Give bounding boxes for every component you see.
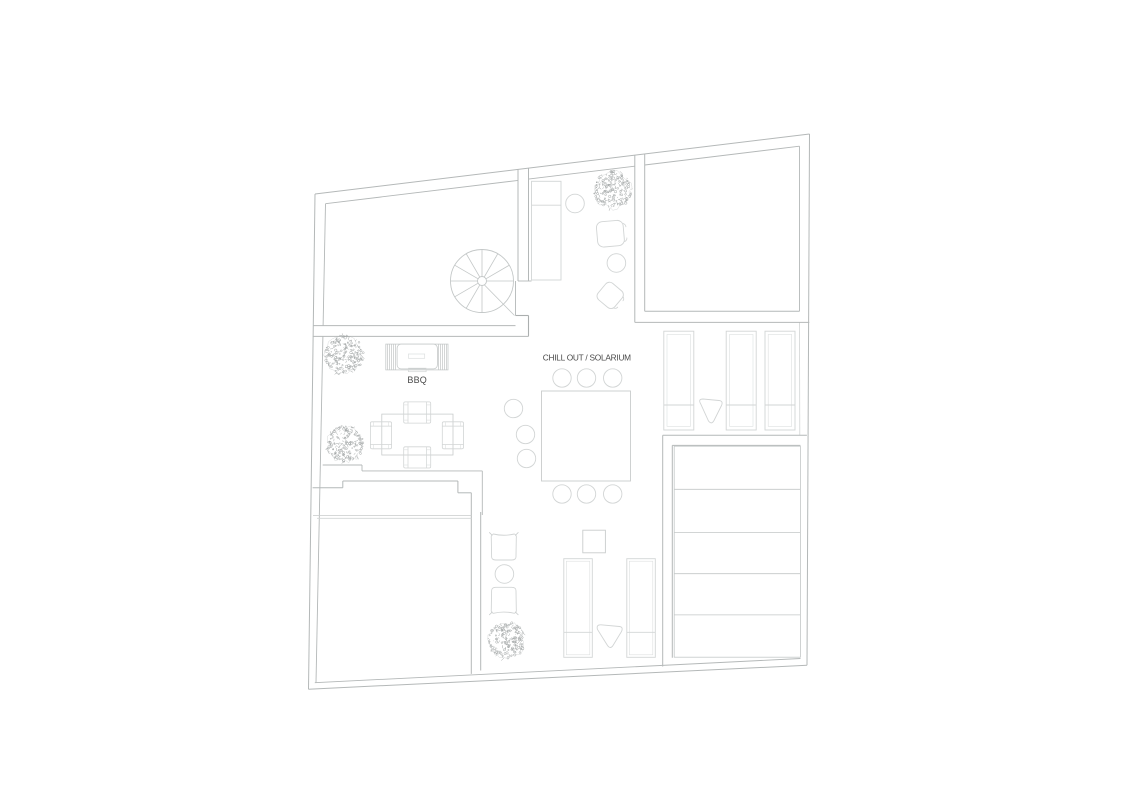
svg-text:BBQ: BBQ: [407, 375, 427, 385]
svg-text:CHILL OUT / SOLARIUM: CHILL OUT / SOLARIUM: [543, 352, 631, 362]
